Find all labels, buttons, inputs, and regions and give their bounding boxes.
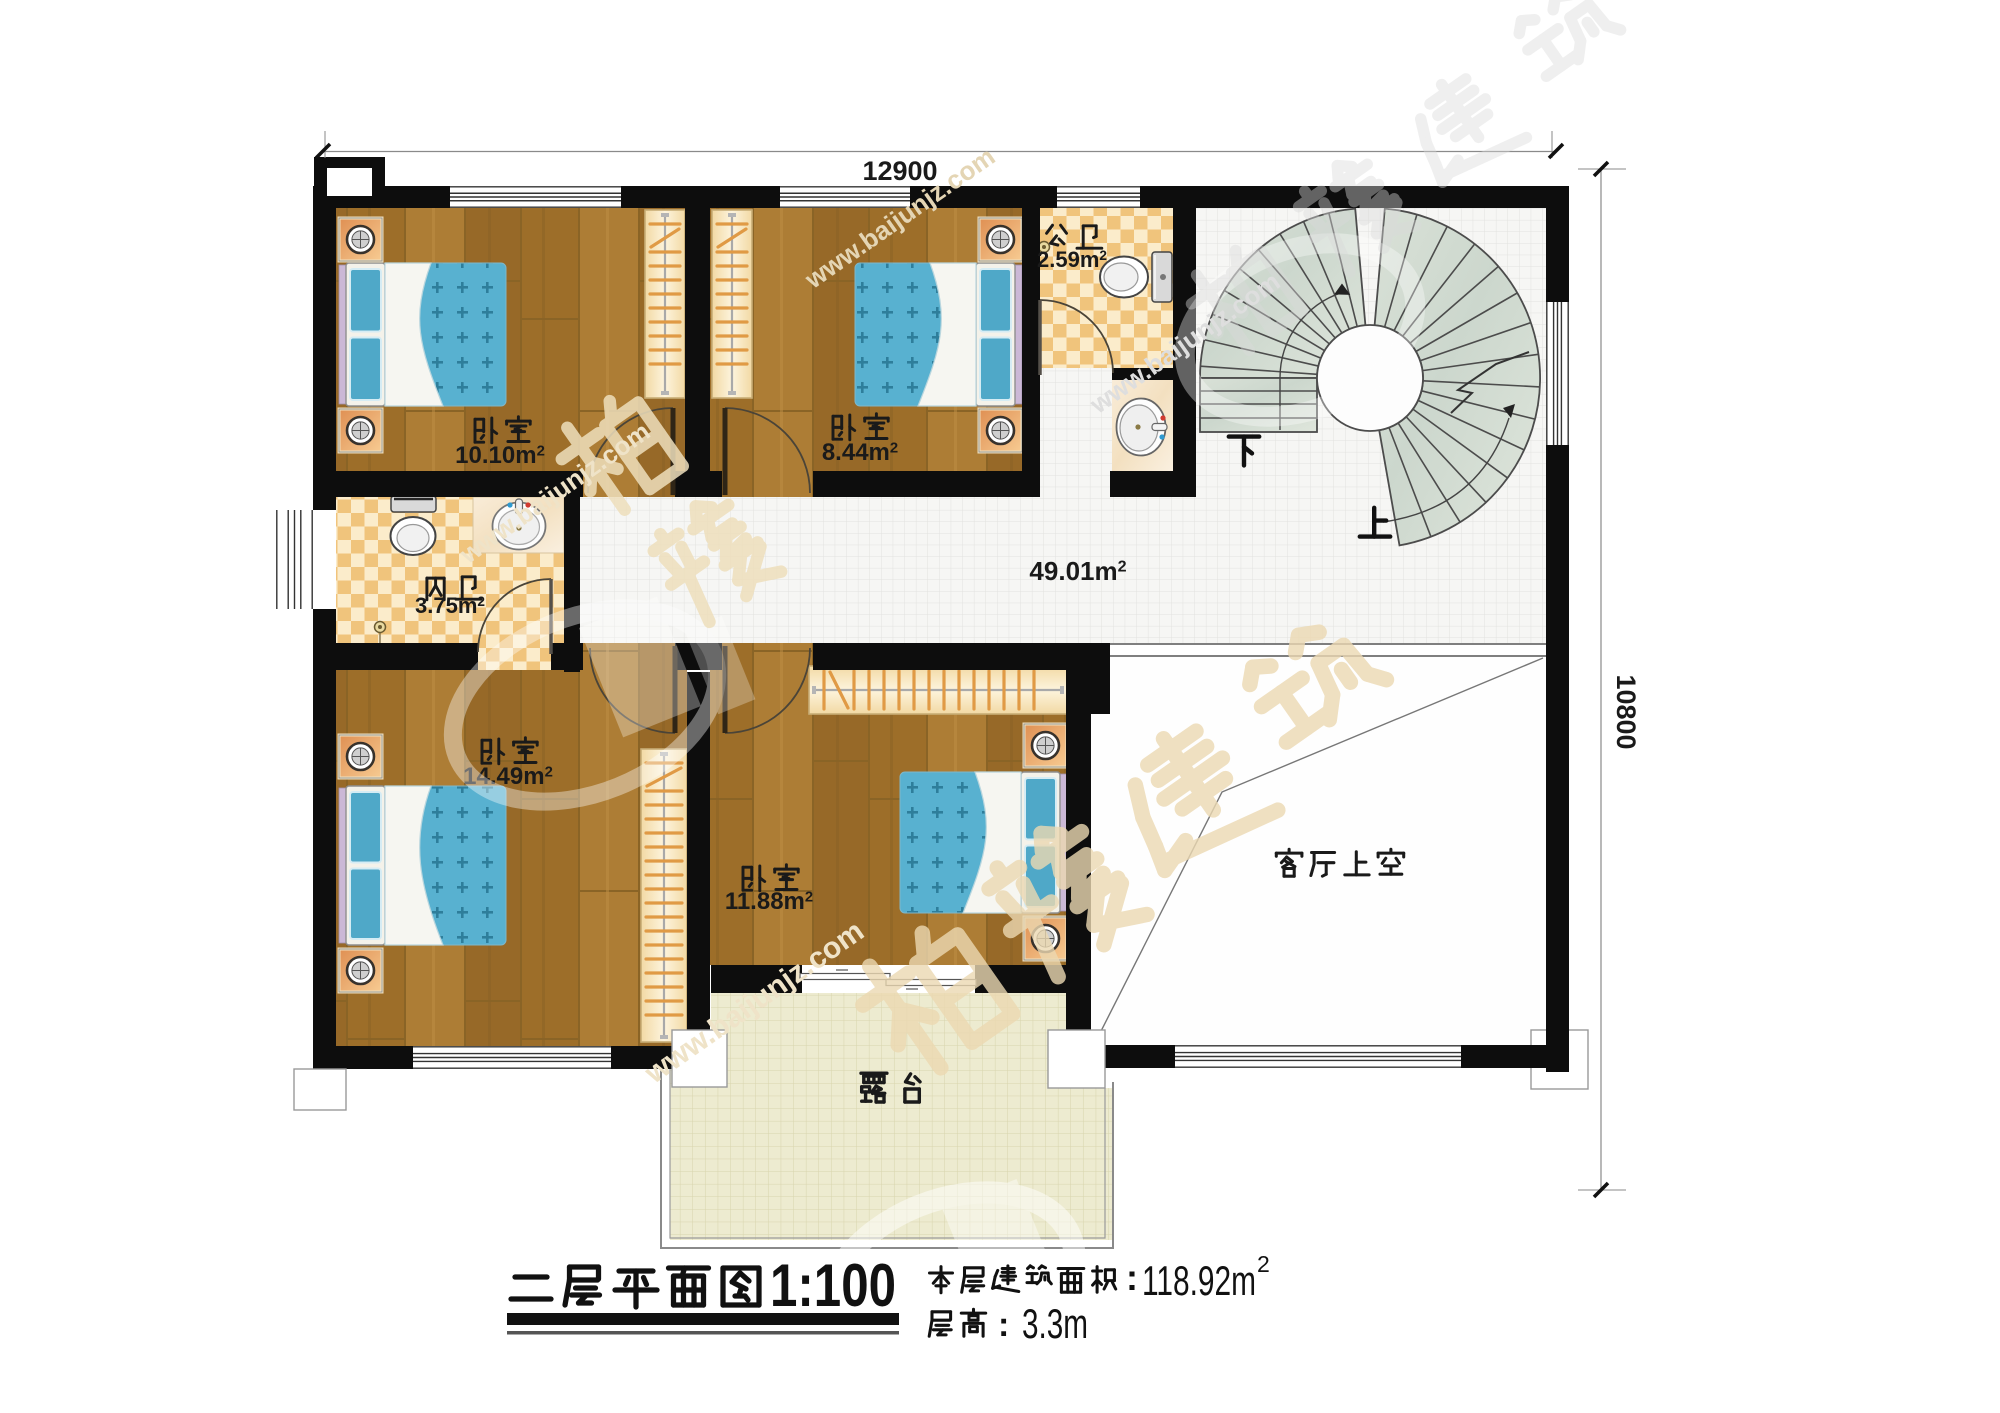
svg-text:2: 2	[1257, 1251, 1270, 1277]
svg-text:2.59m2: 2.59m2	[1037, 247, 1107, 272]
svg-text:1:100: 1:100	[770, 1252, 896, 1319]
svg-text:11.88m2: 11.88m2	[725, 888, 813, 915]
svg-text::: :	[998, 1306, 1009, 1344]
svg-text:3.3m: 3.3m	[1022, 1300, 1088, 1347]
svg-text::: :	[1126, 1257, 1138, 1298]
svg-text:10.10m2: 10.10m2	[455, 442, 545, 469]
svg-text:118.92m: 118.92m	[1142, 1257, 1256, 1304]
svg-text:3.75m2: 3.75m2	[415, 593, 485, 618]
svg-text:49.01m2: 49.01m2	[1029, 556, 1126, 586]
svg-text:8.44m2: 8.44m2	[822, 439, 898, 466]
svg-text:10800: 10800	[1611, 674, 1641, 749]
